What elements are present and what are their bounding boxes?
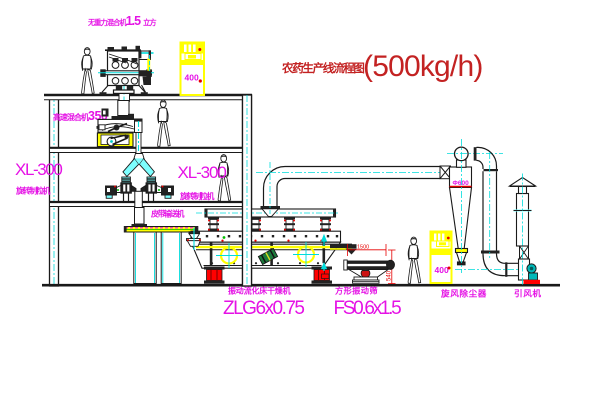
svg-text:引风机: 引风机 bbox=[514, 288, 542, 299]
svg-text:400: 400 bbox=[435, 265, 449, 275]
svg-text:旋转制粒机: 旋转制粒机 bbox=[179, 191, 214, 201]
svg-text:旋转制粒机: 旋转制粒机 bbox=[15, 186, 50, 196]
svg-text:方形振动筛: 方形振动筛 bbox=[335, 286, 378, 296]
svg-text:(500kg/h): (500kg/h) bbox=[363, 50, 483, 83]
svg-text:540: 540 bbox=[387, 270, 393, 281]
svg-text:1500: 1500 bbox=[357, 244, 369, 250]
svg-text:农药生产线流程图: 农药生产线流程图 bbox=[281, 61, 364, 75]
svg-text:Φ600: Φ600 bbox=[453, 180, 470, 187]
svg-text:ZLG6x0.75: ZLG6x0.75 bbox=[223, 298, 304, 319]
svg-text:XL-300: XL-300 bbox=[15, 160, 62, 179]
svg-text:皮带输送机: 皮带输送机 bbox=[150, 209, 185, 219]
svg-text:400: 400 bbox=[185, 73, 199, 83]
svg-text:XL-300: XL-300 bbox=[178, 163, 227, 182]
svg-text:FS0.6x1.5: FS0.6x1.5 bbox=[334, 298, 402, 319]
svg-text:旋风除尘器: 旋风除尘器 bbox=[440, 288, 487, 299]
svg-text:振动流化床干燥机: 振动流化床干燥机 bbox=[228, 286, 291, 296]
